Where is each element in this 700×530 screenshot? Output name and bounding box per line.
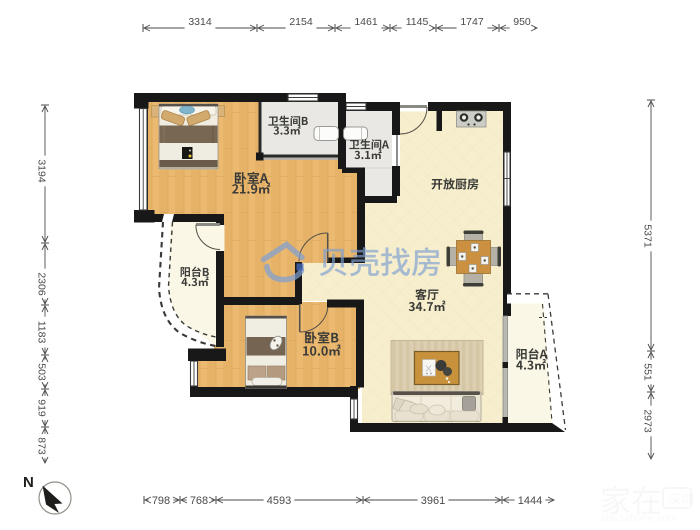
svg-text:3194: 3194	[36, 159, 48, 183]
svg-text:1747: 1747	[460, 16, 484, 28]
svg-text:551: 551	[642, 363, 654, 381]
svg-text:1183: 1183	[36, 321, 48, 344]
svg-text:3314: 3314	[188, 16, 212, 28]
svg-text:1145: 1145	[406, 16, 429, 28]
svg-text:2973: 2973	[642, 409, 654, 433]
svg-text:3961: 3961	[421, 495, 445, 507]
svg-text:1461: 1461	[354, 16, 378, 28]
svg-text:768: 768	[190, 495, 208, 507]
svg-text:bbs.szhome.com: bbs.szhome.com	[601, 513, 677, 524]
svg-text:2154: 2154	[289, 16, 313, 28]
svg-text:873: 873	[36, 437, 48, 455]
svg-text:798: 798	[152, 495, 170, 507]
svg-text:4593: 4593	[267, 495, 291, 507]
svg-text:950: 950	[513, 16, 531, 28]
svg-text:N: N	[23, 474, 34, 491]
svg-text:2306: 2306	[36, 272, 48, 296]
svg-text:5371: 5371	[642, 224, 654, 248]
svg-text:919: 919	[36, 399, 48, 417]
svg-text:503: 503	[36, 363, 48, 381]
svg-text:1444: 1444	[518, 495, 542, 507]
